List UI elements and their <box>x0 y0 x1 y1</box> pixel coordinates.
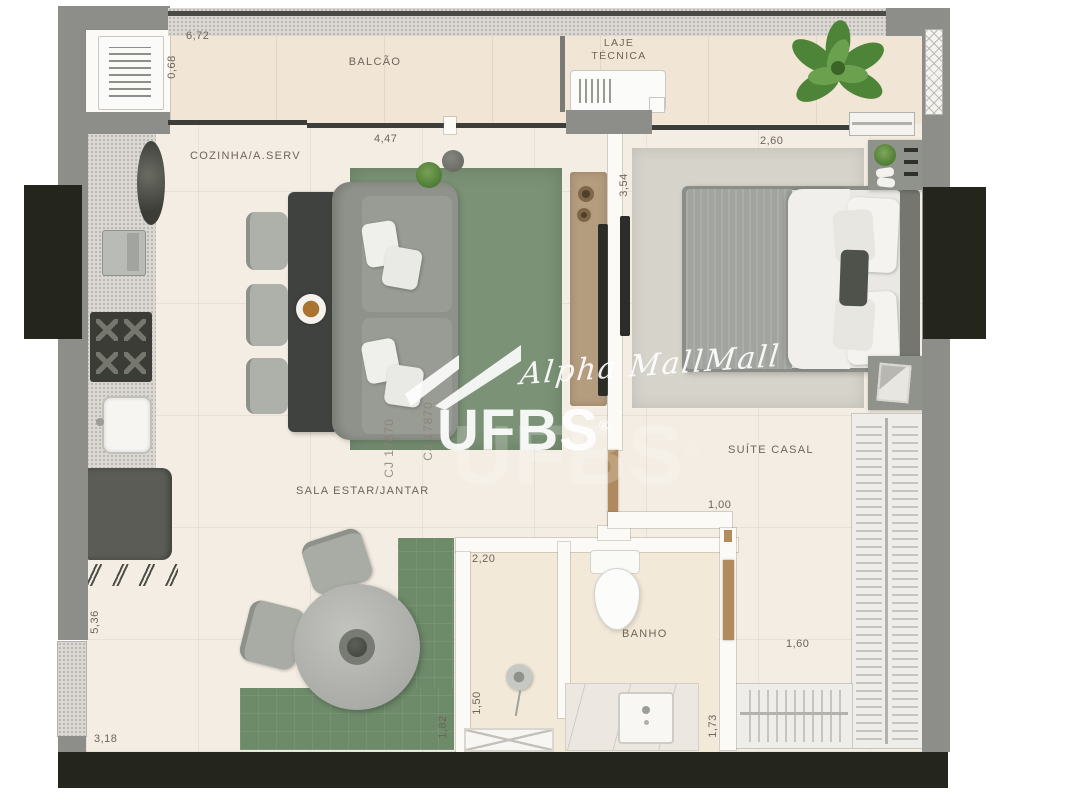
sliding-door-track <box>307 123 444 128</box>
closet-bottom <box>736 684 852 748</box>
table-centerpiece-inner <box>347 637 367 657</box>
appliance-door-line <box>127 233 139 271</box>
speaker-knob <box>577 208 591 222</box>
nightstand-bottom <box>868 356 922 410</box>
bathroom-door-jamb <box>598 526 630 540</box>
outer-wall-right <box>922 8 950 752</box>
dim-shower-width: 2,20 <box>472 553 495 565</box>
dim-bottom-wall: 3,18 <box>94 733 117 745</box>
left-window <box>58 642 86 736</box>
bathroom-wall-left <box>456 552 470 752</box>
wall-below-niche <box>82 112 170 134</box>
bar-stool <box>246 284 288 346</box>
bed-blanket <box>686 189 792 369</box>
room-label-living: SALA ESTAR/JANTAR <box>296 485 430 497</box>
hanging-clothes <box>742 690 846 742</box>
window-mullion <box>852 122 912 125</box>
shower-head-icon <box>506 664 532 690</box>
book-stack <box>904 148 918 152</box>
book-stack <box>904 160 918 164</box>
bathroom-door-leaf <box>723 560 734 640</box>
floor-plan: BALCÃO LAJE TÉCNICA COZINHA/A.SERV SALA … <box>0 0 1080 806</box>
suite-window-line <box>652 125 850 130</box>
tv-living <box>598 224 608 396</box>
balcony-plant <box>788 20 888 120</box>
tv-suite <box>620 216 630 336</box>
door-hinge <box>724 530 732 542</box>
laje-divider-wall <box>560 36 565 112</box>
dim-living-width: 4,47 <box>374 133 397 145</box>
door-jamb <box>444 117 456 134</box>
room-label-suite: SUÍTE CASAL <box>728 444 814 456</box>
balcony-right-window <box>926 30 942 114</box>
vanity-sink <box>618 692 674 744</box>
kitchen-sink <box>102 396 152 454</box>
wardrobe-right <box>852 414 922 748</box>
bar-stool <box>246 212 288 270</box>
vanity-faucet <box>642 706 650 714</box>
drying-rack <box>88 564 178 586</box>
sliding-door-track <box>168 120 307 125</box>
dim-balcony-width: 6,72 <box>186 30 209 42</box>
plate-of-food <box>296 294 326 324</box>
cooktop <box>90 312 152 382</box>
structure-block-right <box>923 187 986 339</box>
refrigerator <box>86 468 172 560</box>
speaker-knob <box>578 186 594 202</box>
dim-kitchen-wall: 5,36 <box>89 605 101 639</box>
dim-suite-depth: 3,54 <box>618 168 630 202</box>
suite-wall-bottom <box>608 512 732 528</box>
kitchen-appliance <box>102 230 146 276</box>
burner-icon <box>96 319 118 341</box>
potted-plant-small <box>416 162 442 188</box>
outer-wall-left-stub <box>58 736 86 752</box>
dim-shower-depth: 1,50 <box>471 686 483 720</box>
vanity-faucet-dot <box>644 720 649 725</box>
decor-item <box>877 177 896 188</box>
sink-faucet <box>96 418 104 426</box>
burner-icon <box>96 352 118 374</box>
sofa-pillow <box>381 245 423 291</box>
shower-bench-grate <box>466 730 552 750</box>
dim-closet-width: 1,60 <box>786 638 809 650</box>
decor-item <box>875 167 894 178</box>
hanging-clothes <box>892 420 918 742</box>
counter-vase <box>137 141 165 225</box>
bar-stool <box>246 358 288 414</box>
plant-on-nightstand <box>874 144 896 166</box>
closet-rod <box>885 418 888 744</box>
structure-band-bottom <box>58 752 948 788</box>
laje-wall-block <box>566 110 652 134</box>
picture-frame <box>876 363 911 404</box>
hanging-clothes <box>856 420 882 742</box>
dim-balcony-depth: 0,68 <box>166 50 178 84</box>
headboard <box>900 190 920 370</box>
dim-bath-side: 1,73 <box>707 709 719 743</box>
accent-pillow <box>839 250 869 307</box>
room-label-kitchen: COZINHA/A.SERV <box>190 150 301 162</box>
laje-ac-louvers <box>579 79 613 103</box>
technical-slab-line2: TÉCNICA <box>591 50 646 62</box>
room-label-balcony: BALCÃO <box>325 56 425 68</box>
room-label-technical-slab: LAJE TÉCNICA <box>580 36 658 62</box>
ac-louvers <box>109 47 151 97</box>
room-label-bathroom: BANHO <box>622 628 668 640</box>
side-table <box>442 150 464 172</box>
ac-condenser-unit <box>98 36 164 110</box>
structure-block-left <box>24 185 82 339</box>
nightstand-top <box>868 140 922 190</box>
closet-rod <box>740 712 848 715</box>
book-stack <box>904 172 918 176</box>
sliding-door-track <box>456 123 566 128</box>
technical-slab-line1: LAJE <box>604 37 634 49</box>
laje-ac-unit <box>570 70 666 112</box>
sofa-pillow <box>383 364 424 409</box>
dim-dining-rug: 1,82 <box>437 710 449 744</box>
burner-icon <box>124 319 146 341</box>
burner-icon <box>124 352 146 374</box>
dim-suite-width: 2,60 <box>760 135 783 147</box>
dim-suite-door: 1,00 <box>708 499 731 511</box>
balcony-railing-line <box>168 11 886 16</box>
